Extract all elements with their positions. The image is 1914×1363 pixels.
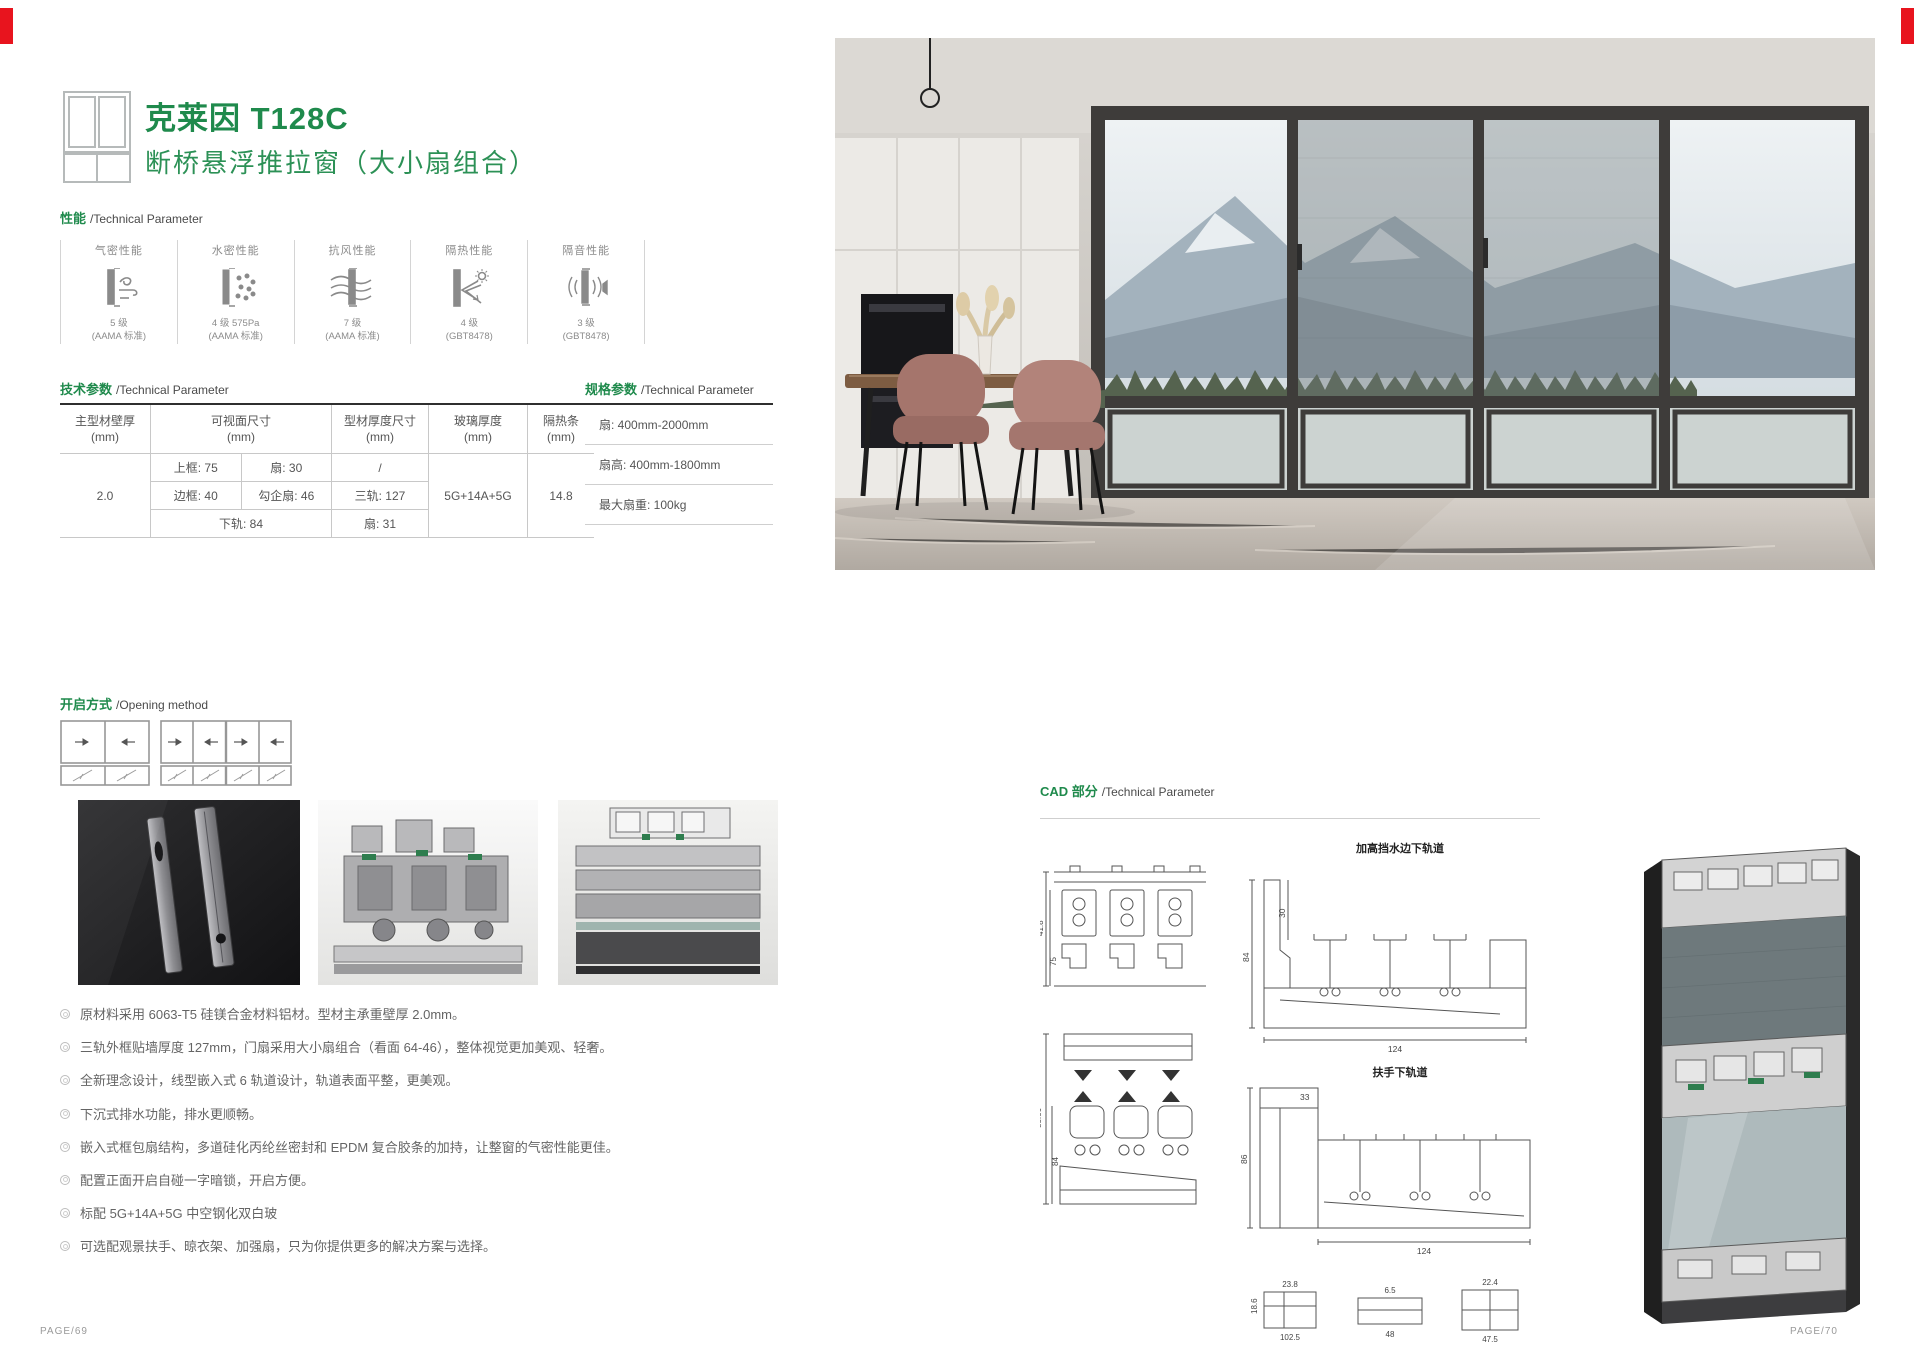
spec-max-weight: 最大扇重: 100kg — [585, 485, 773, 525]
cad-dim: 33 — [1300, 1092, 1310, 1102]
rating-standard: (AAMA 标准) — [92, 331, 146, 344]
col-profile-depth: 型材厚度尺寸 (mm) — [332, 404, 429, 454]
list-item: 三轨外框贴墙厚度 127mm，门扇采用大小扇组合（看面 64-46），整体视觉更… — [60, 1039, 720, 1057]
cell-hook-sash: 勾企扇: 46 — [241, 482, 332, 510]
cad-dim: 88.66 — [1040, 1107, 1043, 1128]
spec-list: 扇: 400mm-2000mm 扇高: 400mm-1800mm 最大扇重: 1… — [585, 403, 773, 525]
opening-header-zh: 开启方式 — [60, 694, 112, 713]
slide-arrow-icon — [242, 739, 247, 745]
rating-value: 7 级 — [325, 318, 379, 331]
feature-text: 下沉式排水功能，排水更顺畅。 — [80, 1106, 262, 1124]
cell-glass: 5G+14A+5G — [429, 454, 528, 538]
feature-list: 原材料采用 6063-T5 硅镁合金材料铝材。型材主承重壁厚 2.0mm。 三轨… — [60, 1006, 720, 1272]
tech-header-zh: 技术参数 — [60, 379, 112, 398]
feature-text: 配置正面开启自碰一字暗锁，开启方便。 — [80, 1172, 314, 1190]
cad-dim: 48 — [1386, 1330, 1395, 1339]
performance-header-zh: 性能 — [60, 208, 86, 227]
bullet-icon — [60, 1042, 70, 1052]
page-right: CAD 部分 /Technical Parameter 41.8 75 — [800, 0, 1914, 1363]
cad-section-header: CAD 部分 /Technical Parameter — [1040, 781, 1215, 800]
list-item: 原材料采用 6063-T5 硅镁合金材料铝材。型材主承重壁厚 2.0mm。 — [60, 1006, 720, 1024]
cad-dim: 47.5 — [1482, 1335, 1498, 1344]
slide-arrow-icon — [176, 739, 181, 745]
wind-resistance-icon — [329, 268, 375, 308]
bullet-icon — [60, 1009, 70, 1019]
slide-arrow-icon — [271, 739, 276, 745]
slide-arrow-icon — [122, 739, 127, 745]
tech-header-en: /Technical Parameter — [116, 383, 229, 397]
opening-diagrams — [60, 720, 292, 786]
spec-header-zh: 规格参数 — [585, 379, 637, 398]
table-row: 2.0 上框: 75 扇: 30 / 5G+14A+5G 14.8 — [60, 454, 594, 482]
list-item: 可选配观景扶手、晾衣架、加强扇，只为你提供更多的解决方案与选择。 — [60, 1238, 720, 1256]
spec-section-header: 规格参数 /Technical Parameter — [585, 379, 754, 398]
cad-dim: 75 — [1049, 957, 1058, 966]
bullet-icon — [60, 1175, 70, 1185]
list-item: 配置正面开启自碰一字暗锁，开启方便。 — [60, 1172, 720, 1190]
opening-diagram-two-panel — [60, 720, 150, 786]
performance-name: 水密性能 — [212, 242, 260, 258]
window-schematic-icon — [62, 90, 132, 184]
rating-standard: (AAMA 标准) — [209, 331, 263, 344]
heat-insulation-icon — [446, 268, 492, 308]
feature-text: 可选配观景扶手、晾衣架、加强扇，只为你提供更多的解决方案与选择。 — [80, 1238, 496, 1256]
slide-arrow-icon — [83, 739, 88, 745]
page-left: 克莱因 T128C 断桥悬浮推拉窗（大小扇组合） 性能 /Technical P… — [0, 0, 800, 1363]
cell-bottom-track: 下轨: 84 — [151, 510, 332, 538]
rating-value: 4 级 575Pa — [209, 318, 263, 331]
rating-standard: (AAMA 标准) — [325, 331, 379, 344]
cad-dim: 18.6 — [1250, 1298, 1259, 1314]
profile-3d-render — [1628, 838, 1873, 1333]
performance-item-wind: 抗风性能 7 级 (AAMA 标准) — [294, 240, 411, 344]
opening-header-en: /Opening method — [116, 698, 208, 712]
cad-header-zh: CAD 部分 — [1040, 781, 1098, 800]
bullet-icon — [60, 1241, 70, 1251]
bullet-icon — [60, 1208, 70, 1218]
cad-divider — [1040, 818, 1540, 819]
performance-rating: 5 级 (AAMA 标准) — [92, 318, 146, 344]
performance-item-sound: 隔音性能 3 级 (GBT8478) — [527, 240, 645, 344]
performance-item-heat: 隔热性能 4 级 (GBT8478) — [410, 240, 527, 344]
hardware-photo — [78, 800, 300, 985]
list-item: 嵌入式框包扇结构，多道硅化丙纶丝密封和 EPDM 复合胶条的加持，让整窗的气密性… — [60, 1139, 720, 1157]
cad-dim: 86 — [1240, 1154, 1249, 1164]
spec-sash-width: 扇: 400mm-2000mm — [585, 405, 773, 445]
spec-header-en: /Technical Parameter — [641, 383, 754, 397]
performance-item-airtight: 气密性能 5 级 (AAMA 标准) — [60, 240, 177, 344]
opening-section-header: 开启方式 /Opening method — [60, 694, 208, 713]
airtight-performance-icon — [96, 268, 142, 308]
cad-dim: 124 — [1388, 1044, 1402, 1054]
col-glass-thickness: 玻璃厚度 (mm) — [429, 404, 528, 454]
tech-section-header: 技术参数 /Technical Parameter — [60, 379, 229, 398]
slide-arrow-icon — [205, 739, 210, 745]
feature-text: 嵌入式框包扇结构，多道硅化丙纶丝密封和 EPDM 复合胶条的加持，让整窗的气密性… — [80, 1139, 619, 1157]
watertight-performance-icon — [213, 268, 259, 308]
performance-item-watertight: 水密性能 4 级 575Pa (AAMA 标准) — [177, 240, 294, 344]
cell-top-frame: 上框: 75 — [151, 454, 242, 482]
feature-text: 原材料采用 6063-T5 硅镁合金材料铝材。型材主承重壁厚 2.0mm。 — [80, 1006, 465, 1024]
rating-value: 5 级 — [92, 318, 146, 331]
cell-side-frame: 边框: 40 — [151, 482, 242, 510]
page-title: 克莱因 T128C — [145, 93, 349, 138]
bullet-icon — [60, 1075, 70, 1085]
cad-dim: 41.8 — [1040, 920, 1045, 936]
bullet-icon — [60, 1109, 70, 1119]
cad-dim: 22.4 — [1482, 1278, 1498, 1287]
list-item: 下沉式排水功能，排水更顺畅。 — [60, 1106, 720, 1124]
performance-rating: 3 级 (GBT8478) — [563, 318, 610, 344]
cad-dim: 124 — [1417, 1246, 1431, 1256]
profile-render-2 — [558, 800, 778, 985]
performance-rating: 7 级 (AAMA 标准) — [325, 318, 379, 344]
performance-name: 隔热性能 — [445, 242, 493, 258]
feature-text: 全新理念设计，线型嵌入式 6 轨道设计，轨道表面平整，更美观。 — [80, 1072, 458, 1090]
performance-name: 抗风性能 — [328, 242, 376, 258]
page-number-right: PAGE/70 — [1790, 1326, 1838, 1337]
cell-slash: / — [332, 454, 429, 482]
profile-render-1 — [318, 800, 538, 985]
rating-standard: (GBT8478) — [446, 331, 493, 344]
performance-rating: 4 级 (GBT8478) — [446, 318, 493, 344]
cad-section-drawings: 41.8 75 88.66 84 — [1040, 856, 1220, 1316]
rating-value: 4 级 — [446, 318, 493, 331]
cad-label-raised-sill: 加高挡水边下轨道 — [1355, 841, 1444, 855]
col-wall-thickness: 主型材壁厚 (mm) — [60, 404, 151, 454]
cad-dim: 84 — [1051, 1157, 1060, 1166]
cell-three-track: 三轨: 127 — [332, 482, 429, 510]
performance-row: 气密性能 5 级 (AAMA 标准) 水密性能 — [60, 240, 645, 344]
tech-parameter-table: 主型材壁厚 (mm) 可视面尺寸 (mm) 型材厚度尺寸 (mm) 玻璃厚度 (… — [60, 403, 594, 538]
bullet-icon — [60, 1142, 70, 1152]
rating-value: 3 级 — [563, 318, 610, 331]
cad-dim: 6.5 — [1384, 1286, 1396, 1295]
feature-text: 标配 5G+14A+5G 中空钢化双白玻 — [80, 1205, 277, 1223]
list-item: 全新理念设计，线型嵌入式 6 轨道设计，轨道表面平整，更美观。 — [60, 1072, 720, 1090]
sound-insulation-icon — [563, 268, 609, 308]
cad-dim: 30 — [1277, 908, 1287, 918]
performance-name: 气密性能 — [95, 242, 143, 258]
opening-diagram-four-panel — [160, 720, 292, 786]
performance-rating: 4 级 575Pa (AAMA 标准) — [209, 318, 263, 344]
cad-header-en: /Technical Parameter — [1102, 785, 1215, 799]
performance-name: 隔音性能 — [562, 242, 610, 258]
page-number-left: PAGE/69 — [40, 1326, 88, 1337]
col-visible-size: 可视面尺寸 (mm) — [151, 404, 332, 454]
hero-photo — [835, 38, 1875, 570]
cad-label-handrail-sill: 扶手下轨道 — [1373, 1065, 1428, 1079]
performance-section-header: 性能 /Technical Parameter — [60, 208, 203, 227]
cad-sill-drawings: 加高挡水边下轨道 84 30 124 扶手下轨道 — [1240, 840, 1570, 1345]
cad-dim: 23.8 — [1282, 1280, 1298, 1289]
table-header-row: 主型材壁厚 (mm) 可视面尺寸 (mm) 型材厚度尺寸 (mm) 玻璃厚度 (… — [60, 404, 594, 454]
catalog-spread: 克莱因 T128C 断桥悬浮推拉窗（大小扇组合） 性能 /Technical P… — [0, 0, 1914, 1363]
rating-standard: (GBT8478) — [563, 331, 610, 344]
cad-dim: 84 — [1241, 952, 1251, 962]
feature-text: 三轨外框贴墙厚度 127mm，门扇采用大小扇组合（看面 64-46），整体视觉更… — [80, 1039, 612, 1057]
page-subtitle: 断桥悬浮推拉窗（大小扇组合） — [145, 143, 537, 180]
list-item: 标配 5G+14A+5G 中空钢化双白玻 — [60, 1205, 720, 1223]
cell-sash-depth: 扇: 31 — [332, 510, 429, 538]
cad-dim: 102.5 — [1280, 1333, 1301, 1342]
cell-sash: 扇: 30 — [241, 454, 332, 482]
spec-sash-height: 扇高: 400mm-1800mm — [585, 445, 773, 485]
cell-wall: 2.0 — [60, 454, 151, 538]
performance-header-en: /Technical Parameter — [90, 212, 203, 226]
